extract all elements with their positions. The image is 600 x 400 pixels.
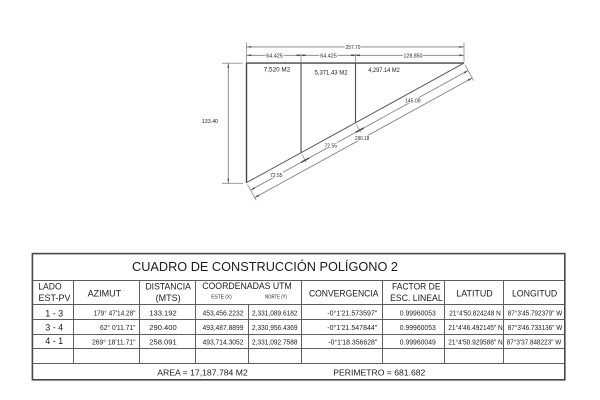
svg-text:AZIMUT: AZIMUT <box>88 288 122 298</box>
svg-text:290.18: 290.18 <box>355 136 369 142</box>
svg-text:CUADRO DE CONSTRUCCIÓN POLÍGON: CUADRO DE CONSTRUCCIÓN POLÍGONO 2 <box>132 259 398 274</box>
svg-text:453,456.2232: 453,456.2232 <box>203 308 244 317</box>
svg-text:179° 47'14.28": 179° 47'14.28" <box>94 308 136 317</box>
svg-text:CONVERGENCIA: CONVERGENCIA <box>309 288 379 298</box>
svg-text:5,371.43 M2: 5,371.43 M2 <box>315 69 348 76</box>
svg-text:133.40: 133.40 <box>202 119 218 125</box>
svg-text:133.192: 133.192 <box>149 308 177 317</box>
svg-text:-0°1'18.356628": -0°1'18.356628" <box>328 337 377 346</box>
svg-text:-0°1'21.547844": -0°1'21.547844" <box>327 323 377 332</box>
svg-text:87°3'46.733136" W: 87°3'46.733136" W <box>508 323 563 332</box>
svg-text:21°4'50.824248 N: 21°4'50.824248 N <box>449 308 501 317</box>
svg-text:4,297.14 M2: 4,297.14 M2 <box>368 67 400 74</box>
svg-text:2,331,092.7588: 2,331,092.7588 <box>252 337 298 346</box>
svg-text:DISTANCIA: DISTANCIA <box>145 281 191 291</box>
svg-text:(MTS): (MTS) <box>156 293 181 303</box>
svg-text:2,330,956.4369: 2,330,956.4369 <box>252 323 298 332</box>
svg-text:21°4'46.492145" N: 21°4'46.492145" N <box>448 323 503 332</box>
svg-text:-0°1'21.573597": -0°1'21.573597" <box>327 308 377 317</box>
svg-text:LADO: LADO <box>38 281 62 291</box>
svg-text:LATITUD: LATITUD <box>456 288 493 298</box>
svg-text:4 - 1: 4 - 1 <box>45 336 63 347</box>
svg-text:64.425: 64.425 <box>266 53 283 59</box>
svg-text:493,714.3052: 493,714.3052 <box>203 337 244 346</box>
svg-text:ESC. LINEAL: ESC. LINEAL <box>390 293 443 303</box>
svg-text:145.09: 145.09 <box>405 99 421 105</box>
svg-text:128.850: 128.850 <box>404 53 423 59</box>
svg-text:21°4'50.929588" N: 21°4'50.929588" N <box>448 337 503 346</box>
svg-text:FACTOR DE: FACTOR DE <box>392 281 441 291</box>
svg-text:87°3'45.792379" W: 87°3'45.792379" W <box>508 308 563 317</box>
svg-text:COORDENADAS UTM: COORDENADAS UTM <box>202 281 292 291</box>
svg-text:ESTE (X): ESTE (X) <box>211 295 232 301</box>
svg-text:269° 18'11.71": 269° 18'11.71" <box>92 337 136 346</box>
svg-text:64.425: 64.425 <box>320 53 337 59</box>
svg-text:7,520 M2: 7,520 M2 <box>264 66 291 73</box>
svg-text:87°3'37.848223" W: 87°3'37.848223" W <box>507 337 562 346</box>
svg-text:72.55: 72.55 <box>270 173 282 179</box>
svg-text:AREA = 17,187.784 M2: AREA = 17,187.784 M2 <box>157 367 248 377</box>
svg-text:PERIMETRO = 681.682: PERIMETRO = 681.682 <box>333 367 425 377</box>
svg-text:257.70: 257.70 <box>346 45 361 51</box>
svg-text:290.400: 290.400 <box>149 323 177 332</box>
svg-text:EST-PV: EST-PV <box>39 293 71 303</box>
svg-text:1 - 3: 1 - 3 <box>45 308 63 319</box>
svg-text:493,487.8899: 493,487.8899 <box>203 323 244 332</box>
svg-text:258.091: 258.091 <box>149 337 177 346</box>
svg-text:LONGITUD: LONGITUD <box>512 288 557 298</box>
svg-text:NORTE (Y): NORTE (Y) <box>265 295 287 301</box>
svg-text:62° 0'11.71": 62° 0'11.71" <box>100 323 136 332</box>
svg-text:72.55: 72.55 <box>325 143 337 149</box>
svg-text:0.99960053: 0.99960053 <box>400 323 436 332</box>
svg-text:2,331,089.6182: 2,331,089.6182 <box>252 308 298 317</box>
svg-text:0.99960053: 0.99960053 <box>400 308 436 317</box>
svg-text:0.99960049: 0.99960049 <box>400 337 436 346</box>
svg-text:3 - 4: 3 - 4 <box>45 322 63 333</box>
